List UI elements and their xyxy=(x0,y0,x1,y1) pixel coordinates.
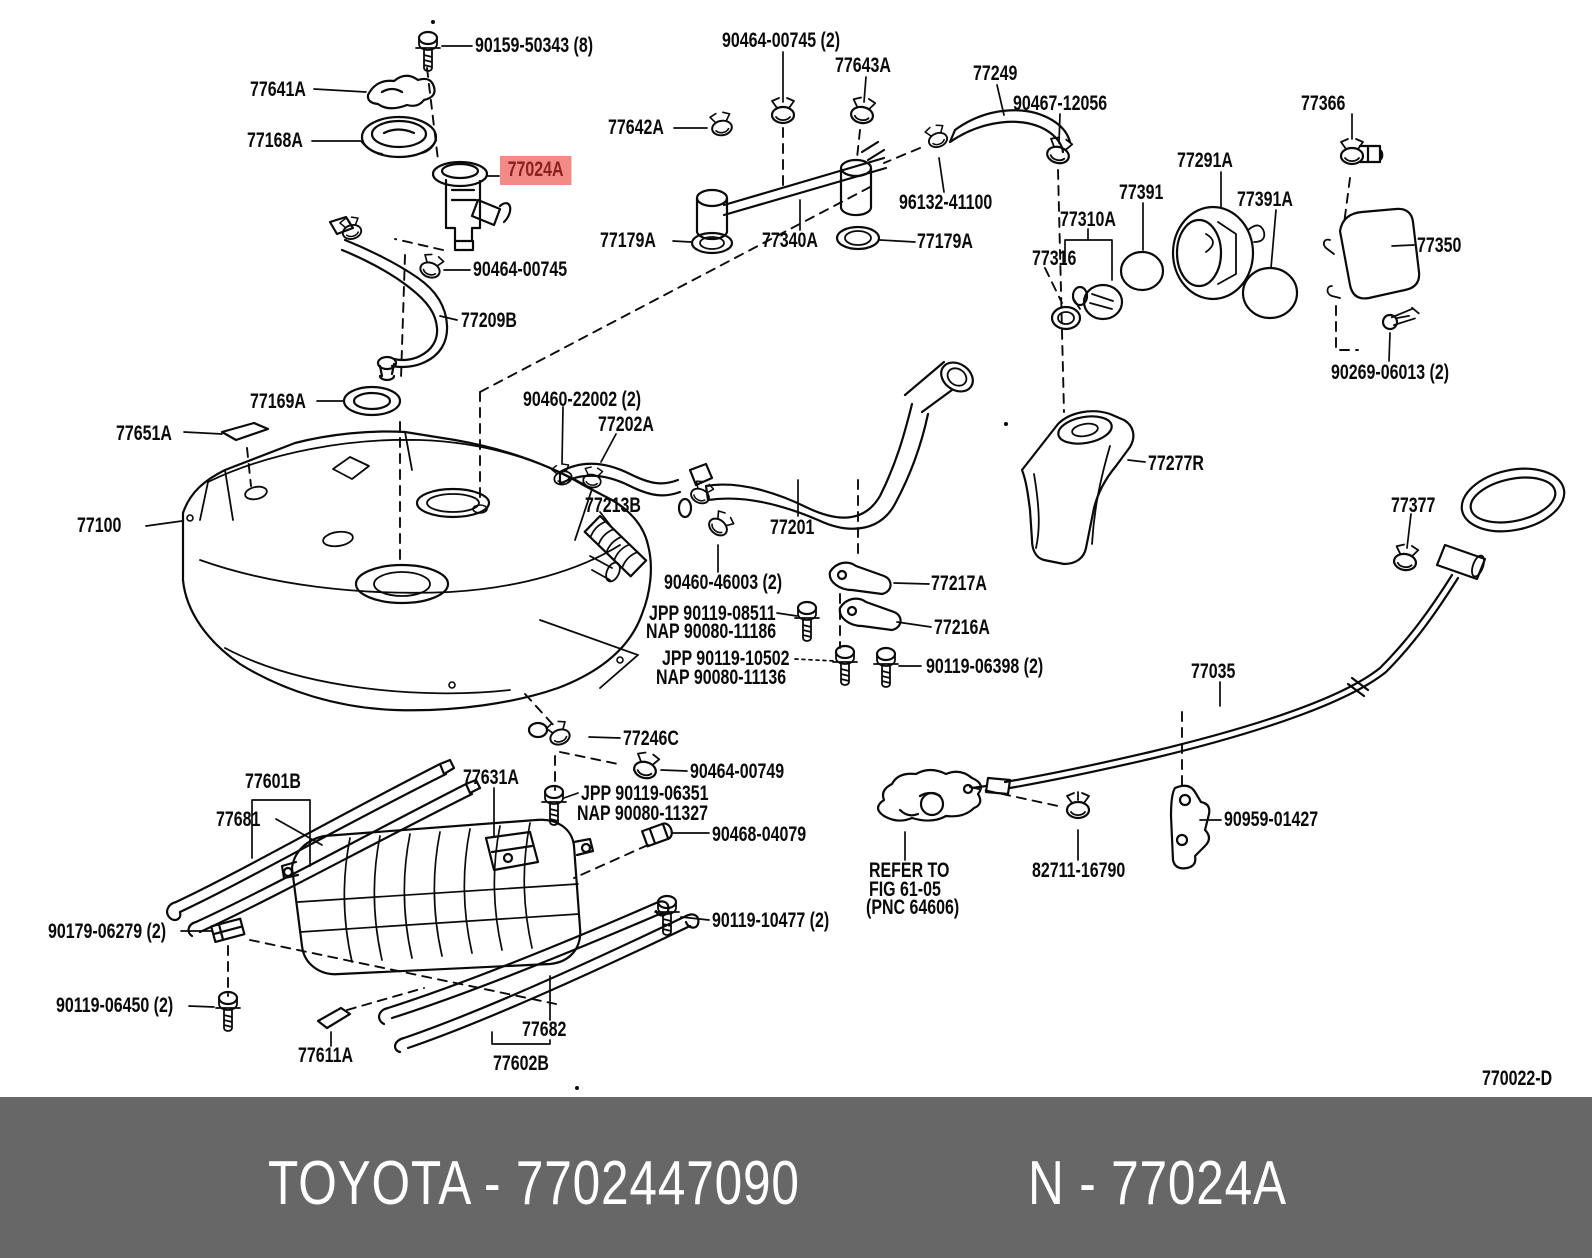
part-label-90467-12056[interactable]: 90467-12056 xyxy=(1013,95,1107,112)
part-label-77643a[interactable]: 77643A xyxy=(835,57,891,74)
part-label-77213b[interactable]: 77213B xyxy=(585,497,641,514)
part-label-77217a[interactable]: 77217A xyxy=(931,575,987,592)
part-label-77216a[interactable]: 77216A xyxy=(934,619,990,636)
part-label-77035[interactable]: 77035 xyxy=(1191,663,1235,680)
part-label-77601b[interactable]: 77601B xyxy=(245,773,301,790)
part-label-nap-90080-11327[interactable]: NAP 90080-11327 xyxy=(577,805,708,822)
part-label-90119-06398-2[interactable]: 90119-06398 (2) xyxy=(926,658,1043,675)
part-label-77168a[interactable]: 77168A xyxy=(247,132,303,149)
part-label-jpp-90119-06351[interactable]: JPP 90119-06351 xyxy=(581,785,709,802)
part-label-90464-00745[interactable]: 90464-00745 xyxy=(473,261,567,278)
part-label-77201[interactable]: 77201 xyxy=(770,519,814,536)
part-label-90460-46003-2[interactable]: 90460-46003 (2) xyxy=(664,574,782,591)
parts-diagram-page: 90159-50343 (8)77641A77168A77024A90464-0… xyxy=(0,0,1592,1258)
part-label-90464-00745-2[interactable]: 90464-00745 (2) xyxy=(722,32,840,49)
part-label-77391a[interactable]: 77391A xyxy=(1237,191,1293,208)
refer-note-line-1: REFER TO xyxy=(869,862,949,879)
footer-pnc-text: N - 77024A xyxy=(1028,1153,1287,1215)
part-label-77642a[interactable]: 77642A xyxy=(608,119,664,136)
labels-layer: 90159-50343 (8)77641A77168A77024A90464-0… xyxy=(0,0,1592,1097)
part-label-90119-10477-2[interactable]: 90119-10477 (2) xyxy=(712,912,829,929)
part-label-77641a[interactable]: 77641A xyxy=(250,81,306,98)
part-label-77651a[interactable]: 77651A xyxy=(116,425,172,442)
part-label-77682[interactable]: 77682 xyxy=(522,1021,566,1038)
part-label-82711-16790[interactable]: 82711-16790 xyxy=(1032,862,1125,879)
part-label-77631a[interactable]: 77631A xyxy=(463,769,519,786)
part-label-77366[interactable]: 77366 xyxy=(1301,95,1345,112)
footer-banner: TOYOTA - 7702447090 N - 77024A xyxy=(0,1097,1592,1258)
part-label-jpp-90119-10502[interactable]: JPP 90119-10502 xyxy=(662,650,790,667)
part-label-77202a[interactable]: 77202A xyxy=(598,416,654,433)
part-label-90119-06450-2[interactable]: 90119-06450 (2) xyxy=(56,997,173,1014)
part-label-96132-41100[interactable]: 96132-41100 xyxy=(899,194,992,211)
part-label-77249[interactable]: 77249 xyxy=(973,65,1017,82)
part-label-77291a[interactable]: 77291A xyxy=(1177,152,1233,169)
part-label-77350[interactable]: 77350 xyxy=(1417,237,1461,254)
part-label-77169a[interactable]: 77169A xyxy=(250,393,306,410)
part-label-77310a[interactable]: 77310A xyxy=(1060,211,1116,228)
part-label-77316[interactable]: 77316 xyxy=(1032,250,1076,267)
part-label-nap-90080-11136[interactable]: NAP 90080-11136 xyxy=(656,669,786,686)
part-label-77024a-highlighted[interactable]: 77024A xyxy=(500,156,571,185)
part-label-77100[interactable]: 77100 xyxy=(77,517,121,534)
part-label-90269-06013-2[interactable]: 90269-06013 (2) xyxy=(1331,364,1449,381)
part-label-77611a[interactable]: 77611A xyxy=(298,1047,353,1064)
footer-part-number-text: TOYOTA - 7702447090 xyxy=(268,1153,800,1215)
part-label-90179-06279-2[interactable]: 90179-06279 (2) xyxy=(48,923,166,940)
part-label-90464-00749[interactable]: 90464-00749 xyxy=(690,763,784,780)
part-label-77179a-right[interactable]: 77179A xyxy=(917,233,973,250)
part-label-nap-90080-11186[interactable]: NAP 90080-11186 xyxy=(646,623,776,640)
part-label-77340a[interactable]: 77340A xyxy=(762,232,818,249)
part-label-77681[interactable]: 77681 xyxy=(216,811,260,828)
part-label-77602b[interactable]: 77602B xyxy=(493,1055,549,1072)
part-label-90159-50343[interactable]: 90159-50343 (8) xyxy=(475,37,593,54)
part-label-77277r[interactable]: 77277R xyxy=(1148,455,1204,472)
refer-note-line-3: (PNC 64606) xyxy=(866,899,959,916)
part-label-77377[interactable]: 77377 xyxy=(1391,497,1435,514)
diagram-code: 770022-D xyxy=(1482,1070,1552,1087)
part-label-90959-01427[interactable]: 90959-01427 xyxy=(1224,811,1318,828)
part-label-77179a-left[interactable]: 77179A xyxy=(600,232,656,249)
part-label-77246c[interactable]: 77246C xyxy=(623,730,679,747)
part-label-77209b[interactable]: 77209B xyxy=(461,312,517,329)
part-label-90468-04079[interactable]: 90468-04079 xyxy=(712,826,806,843)
part-label-90460-22002-2[interactable]: 90460-22002 (2) xyxy=(523,391,641,408)
part-label-77391[interactable]: 77391 xyxy=(1119,184,1163,201)
